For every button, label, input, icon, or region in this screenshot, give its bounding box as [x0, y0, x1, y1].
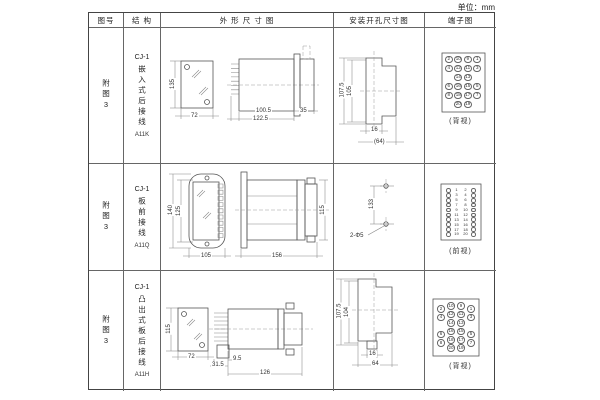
terminal-hole [446, 203, 451, 208]
terminal-13: 13 [457, 319, 465, 327]
terminal-15: 15 [457, 328, 465, 336]
figure-no-text: 附图3 [101, 79, 112, 112]
terminal-gap [467, 322, 475, 330]
terminal-hole [446, 198, 451, 203]
dim-length: 156 [271, 253, 283, 259]
terminal-5: 5 [467, 331, 475, 339]
terminal-8: 8 [437, 339, 445, 347]
terminal-grid: 2109141211314136161558181772019 [436, 302, 476, 352]
manual-page: { "unit_label": "单位：mm", "header": { "fi… [0, 0, 600, 400]
terminal-2: 2 [437, 305, 445, 313]
terminal-4: 4 [437, 314, 445, 322]
terminal-4: 4 [445, 65, 453, 73]
terminal-18: 18 [454, 92, 462, 100]
outline-row3-drawing [161, 271, 334, 391]
terminal-hole [446, 188, 451, 193]
figure-no-text: 附图3 [101, 201, 112, 234]
dim-holes: 2-Φ5 [349, 233, 364, 239]
install-row3-drawing [334, 271, 425, 391]
header-install-holes: 安装开孔尺寸图 [334, 13, 425, 28]
terminal-19: 19 [457, 344, 465, 352]
terminal-gap [473, 101, 481, 109]
dim-depth: 126 [259, 370, 271, 376]
terminal-11: 11 [457, 311, 465, 319]
terminal-5: 5 [473, 83, 481, 91]
terminal-6: 6 [445, 83, 453, 91]
model-label: CJ-1 [135, 284, 150, 291]
terminal-drawing-row1: 2109141211314136161558181772019 (背视) [425, 28, 496, 164]
terminal-3: 3 [467, 314, 475, 322]
terminal-12: 12 [447, 311, 455, 319]
header-outline-dimensions: 外 形 尺 寸 图 [161, 13, 334, 28]
terminal-grid: 2109141211314136161558181772019 [444, 55, 482, 109]
terminal-13: 13 [464, 74, 472, 82]
terminal-18: 18 [447, 336, 455, 344]
figure-no-text: 附图3 [101, 315, 112, 348]
terminal-drawing-row2: 1234567891011121314151617181920 (前视) [425, 164, 496, 271]
dim-pin-length: 31.5 [211, 362, 225, 368]
terminal-hole [471, 213, 476, 218]
dim-outer-height: 107.5 [337, 302, 343, 319]
terminal-19: 19 [464, 101, 472, 109]
dim-slot-width: 16 [370, 127, 379, 133]
dim-inner-height: 105 [347, 85, 353, 97]
header-terminal-diagram: 端子图 [425, 13, 496, 28]
terminal-hole [446, 222, 451, 227]
terminal-hole [471, 217, 476, 222]
terminal-9: 9 [464, 56, 472, 64]
terminal-17: 17 [464, 92, 472, 100]
dim-step: 9.5 [232, 356, 242, 362]
header-structure: 结 构 [124, 13, 161, 28]
terminal-hole [471, 227, 476, 232]
terminal-19: 19 [454, 232, 458, 236]
dim-total-depth: 122.5 [252, 116, 269, 122]
terminal-10: 10 [447, 302, 455, 310]
terminal-16: 16 [447, 328, 455, 336]
terminal-gap [437, 322, 445, 330]
dim-height: 135 [170, 78, 176, 90]
dim-side-height: 115 [320, 204, 326, 216]
outline-row1-drawing [161, 28, 334, 164]
terminal-hole [471, 203, 476, 208]
install-drawing-row2: 133 2-Φ5 [334, 164, 425, 271]
terminal-hole [446, 217, 451, 222]
terminal-10: 10 [454, 56, 462, 64]
structure-desc: 凸出式板后接线 [137, 295, 148, 369]
terminal-11: 11 [464, 65, 472, 73]
dim-hole-spacing: 133 [369, 198, 375, 210]
dim-width: 105 [200, 253, 212, 259]
outline-drawing-row1: 135 72 100.5 35 122.5 [161, 28, 334, 164]
terminal-14: 14 [447, 319, 455, 327]
terminal-hole [471, 222, 476, 227]
terminal-12: 12 [454, 65, 462, 73]
install-drawing-row1: 107.5 105 16 (64) [334, 28, 425, 164]
terminal-gap [445, 74, 453, 82]
model-label: CJ-1 [135, 186, 150, 193]
terminal-16: 16 [454, 83, 462, 91]
dim-inner-height: 125 [176, 205, 182, 217]
dim-outer-height: 140 [168, 204, 174, 216]
terminal-hole [446, 227, 451, 232]
terminal-9: 9 [457, 302, 465, 310]
figure-no-row2: 附图3 [89, 164, 124, 271]
dim-flange-depth: 35 [299, 108, 308, 114]
terminal-pairs: 1234567891011121314151617181920 [445, 188, 477, 237]
terminal-hole [446, 208, 451, 213]
terminal-hole [446, 232, 451, 237]
view-label: (背视) [425, 116, 496, 126]
terminal-20: 20 [454, 101, 462, 109]
outline-drawing-row3: 115 72 9.5 31.5 126 [161, 271, 334, 391]
terminal-14: 14 [454, 74, 462, 82]
terminal-7: 7 [473, 92, 481, 100]
dim-span: (64) [373, 139, 386, 145]
model-code: A11H [135, 372, 150, 378]
figure-no-row3: 附图3 [89, 271, 124, 391]
terminal-gap [467, 347, 475, 355]
terminal-3: 3 [473, 65, 481, 73]
dim-inner-height: 104 [344, 306, 350, 318]
terminal-2: 2 [445, 56, 453, 64]
dim-width: 72 [190, 113, 199, 119]
terminal-20: 20 [447, 344, 455, 352]
structure-desc: 板前接线 [137, 197, 148, 239]
structure-row3: CJ-1 凸出式板后接线 A11H [124, 271, 161, 391]
terminal-1: 1 [473, 56, 481, 64]
outline-drawing-row2: 140 125 105 115 156 [161, 164, 334, 271]
dim-height: 115 [166, 323, 172, 335]
structure-row1: CJ-1 嵌入式后接线 A11K [124, 28, 161, 164]
model-code: A11K [135, 132, 149, 138]
terminal-20: 20 [463, 232, 467, 236]
header-figure-no: 图号 [89, 13, 124, 28]
model-code: A11Q [135, 243, 150, 249]
terminal-7: 7 [467, 339, 475, 347]
terminal-1: 1 [467, 305, 475, 313]
structure-row2: CJ-1 板前接线 A11Q [124, 164, 161, 271]
terminal-17: 17 [457, 336, 465, 344]
terminal-gap [445, 101, 453, 109]
terminal-gap [473, 74, 481, 82]
dim-depth: 100.5 [255, 108, 272, 114]
install-row2-drawing [334, 164, 425, 271]
view-label: (背视) [425, 361, 496, 371]
dim-width: 72 [187, 354, 196, 360]
terminal-hole [446, 193, 451, 198]
terminal-hole [471, 188, 476, 193]
terminal-hole [471, 198, 476, 203]
figure-no-row1: 附图3 [89, 28, 124, 164]
terminal-gap [437, 347, 445, 355]
terminal-15: 15 [464, 83, 472, 91]
dim-outer-height: 107.5 [340, 81, 346, 98]
terminal-hole [471, 232, 476, 237]
terminal-8: 8 [445, 92, 453, 100]
dim-span: 64 [371, 361, 380, 367]
view-label: (前视) [425, 246, 496, 256]
terminal-hole [471, 208, 476, 213]
install-drawing-row3: 107.5 104 16 64 [334, 271, 425, 391]
terminal-hole [446, 213, 451, 218]
model-label: CJ-1 [135, 54, 150, 61]
terminal-hole [471, 193, 476, 198]
terminal-6: 6 [437, 331, 445, 339]
dim-slot-width: 16 [368, 351, 377, 357]
structure-desc: 嵌入式后接线 [137, 65, 148, 128]
outline-row2-drawing [161, 164, 334, 271]
spec-table: 图号 结 构 外 形 尺 寸 图 安装开孔尺寸图 端子图 附图3 CJ-1 嵌入… [88, 12, 495, 390]
terminal-drawing-row3: 2109141211314136161558181772019 (背视) [425, 271, 496, 391]
